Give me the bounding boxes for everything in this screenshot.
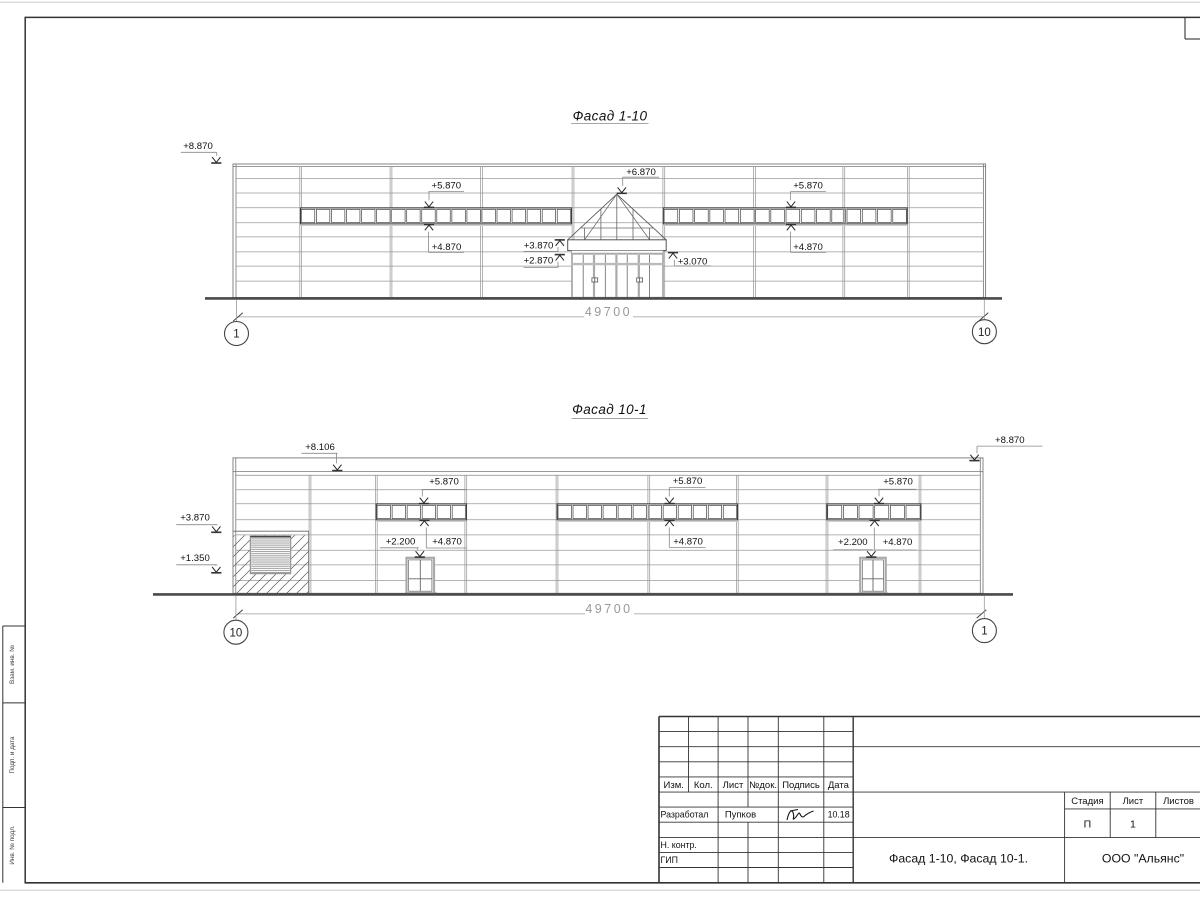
svg-text:Листов: Листов — [1163, 796, 1194, 807]
svg-text:+5.870: +5.870 — [793, 181, 823, 192]
svg-text:Фасад 1-10: Фасад 1-10 — [573, 109, 648, 124]
svg-text:+5.870: +5.870 — [431, 181, 461, 192]
svg-text:ГИП: ГИП — [661, 855, 678, 865]
svg-text:1: 1 — [1130, 818, 1136, 830]
svg-text:+8.106: +8.106 — [305, 442, 335, 453]
svg-text:+5.870: +5.870 — [883, 477, 913, 488]
svg-text:Лист: Лист — [1123, 796, 1144, 807]
svg-text:+3.870: +3.870 — [180, 513, 210, 524]
svg-text:Подпись: Подпись — [782, 780, 820, 791]
svg-text:Разработал: Разработал — [661, 810, 709, 820]
svg-text:№док.: №док. — [749, 780, 777, 791]
svg-text:Подп. и дата: Подп. и дата — [9, 736, 16, 774]
svg-text:+6.870: +6.870 — [626, 167, 656, 178]
svg-text:+8.870: +8.870 — [183, 141, 213, 152]
svg-text:10.18: 10.18 — [828, 809, 850, 819]
svg-text:10: 10 — [230, 627, 243, 639]
svg-text:+8.870: +8.870 — [995, 435, 1025, 446]
svg-text:Изм.: Изм. — [664, 780, 684, 791]
svg-text:+4.870: +4.870 — [432, 242, 462, 253]
svg-text:1: 1 — [233, 329, 239, 341]
svg-text:+2.200: +2.200 — [386, 537, 416, 548]
svg-text:Дата: Дата — [828, 780, 850, 791]
svg-text:ООО "Альянс": ООО "Альянс" — [1102, 852, 1184, 866]
svg-text:1: 1 — [981, 626, 987, 638]
svg-text:Инв. № подл.: Инв. № подл. — [9, 825, 16, 864]
svg-text:+4.870: +4.870 — [793, 242, 823, 253]
svg-text:+1.350: +1.350 — [180, 553, 210, 564]
svg-text:+3.870: +3.870 — [524, 241, 554, 252]
svg-text:49700: 49700 — [585, 602, 632, 616]
svg-text:+4.870: +4.870 — [673, 536, 703, 547]
svg-text:+5.870: +5.870 — [429, 477, 459, 488]
svg-text:Стадия: Стадия — [1071, 796, 1103, 807]
svg-text:+4.870: +4.870 — [883, 537, 913, 548]
svg-text:+4.870: +4.870 — [432, 537, 462, 548]
svg-text:+2.200: +2.200 — [838, 537, 868, 548]
svg-text:Фасад 1-10, Фасад 10-1.: Фасад 1-10, Фасад 10-1. — [889, 852, 1028, 866]
svg-text:+2.870: +2.870 — [524, 256, 554, 267]
svg-text:49700: 49700 — [585, 305, 632, 319]
svg-text:Н. контр.: Н. контр. — [661, 840, 697, 850]
svg-text:Фасад 10-1: Фасад 10-1 — [572, 402, 647, 417]
svg-text:Кол.: Кол. — [694, 780, 713, 791]
svg-text:Пупков: Пупков — [725, 809, 756, 820]
svg-text:Лист: Лист — [723, 780, 744, 791]
svg-text:П: П — [1084, 818, 1092, 830]
svg-text:10: 10 — [978, 327, 991, 339]
svg-text:+5.870: +5.870 — [673, 476, 703, 487]
svg-text:Взам. инв. №: Взам. инв. № — [9, 645, 16, 684]
